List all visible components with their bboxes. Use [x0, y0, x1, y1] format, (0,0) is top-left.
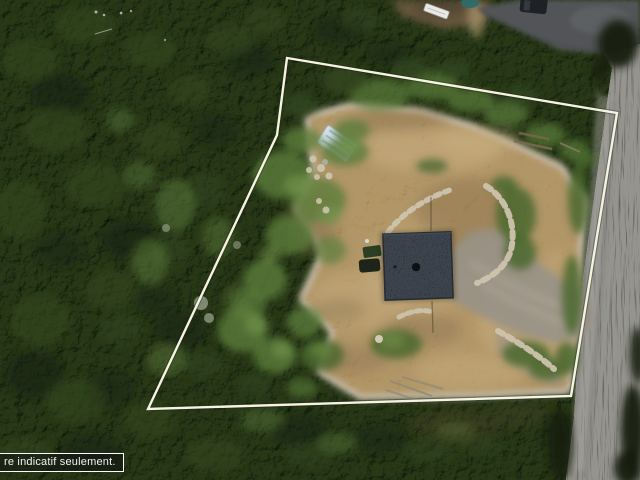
aerial-photo-canvas	[0, 0, 640, 480]
aerial-photo: re indicatif seulement.	[0, 0, 640, 480]
house	[380, 230, 456, 303]
caption-box: re indicatif seulement.	[0, 453, 124, 472]
caption-text: re indicatif seulement.	[4, 456, 116, 468]
